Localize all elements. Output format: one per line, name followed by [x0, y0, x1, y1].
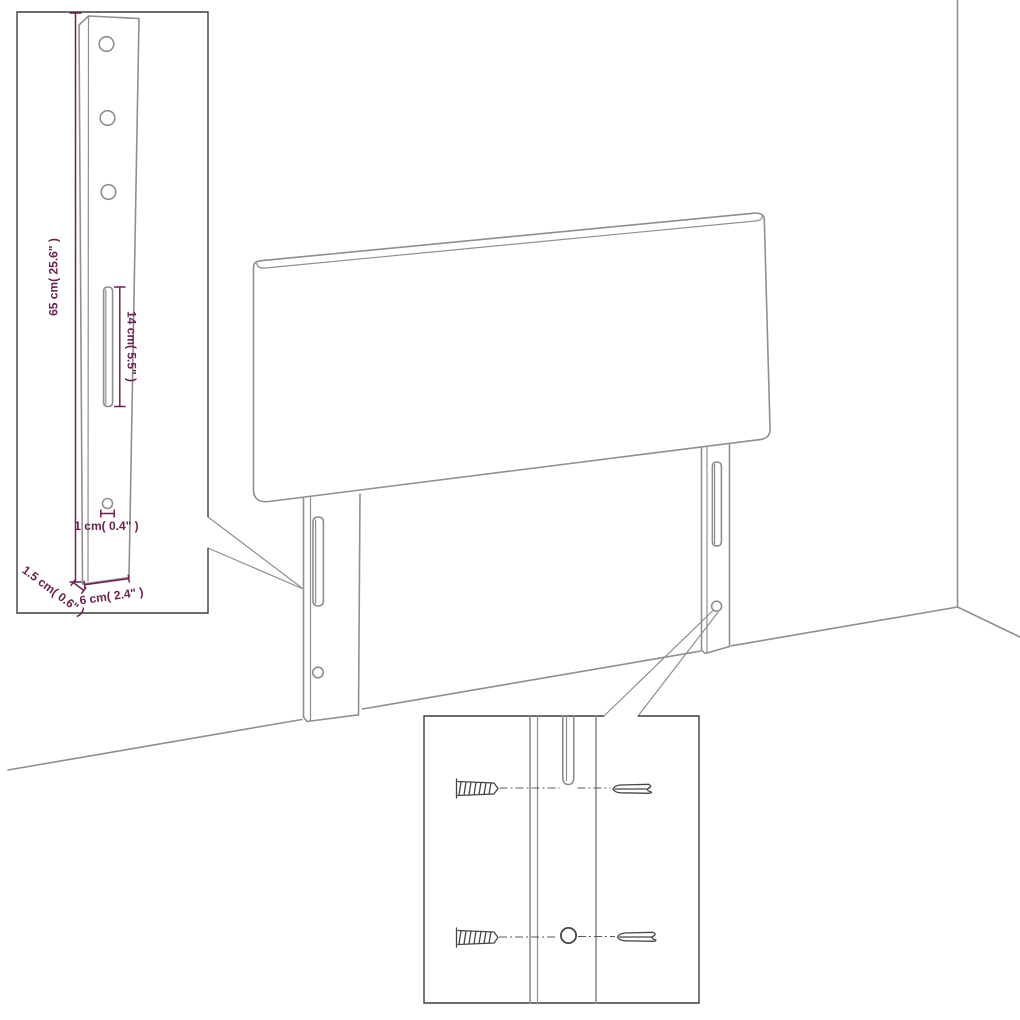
- inset-hardware-frame: [424, 716, 699, 1003]
- dimension-65cm-label: 65 cm( 25.6" ): [47, 238, 61, 316]
- callout-line-left: [604, 611, 713, 717]
- left-leg-slot: [313, 517, 323, 606]
- right-leg-slot: [712, 462, 721, 546]
- inset-leg-slot: [104, 287, 113, 407]
- inset-leg-drawing: [79, 16, 139, 584]
- headboard-panel-outline: [253, 213, 770, 502]
- inset-leg-hole-top: [99, 37, 114, 52]
- inset-hardware-leg-closeup: [530, 716, 596, 1003]
- floor-line-left-segment3: [732, 607, 958, 646]
- closeup-hole: [561, 928, 576, 943]
- callout-line-right: [638, 613, 718, 717]
- inset-leg-hole-middle: [100, 111, 115, 126]
- wall-plug-top: [457, 779, 499, 798]
- inset-hardware-detail: [424, 716, 699, 1003]
- headboard-dimension-diagram: 65 cm( 25.6" ) 14 cm( 5.5" ) 1 cm( 0.4" …: [0, 0, 1020, 1020]
- right-leg-hole: [712, 601, 722, 611]
- dimension-14cm-label: 14 cm( 5.5" ): [125, 311, 139, 382]
- dimension-1p5cm: 1.5 cm( 0.6" ): [19, 563, 87, 619]
- inset-leg-bottom-hole: [103, 499, 113, 509]
- dimension-65cm: 65 cm( 25.6" ): [47, 13, 82, 582]
- headboard-left-leg: [304, 494, 361, 721]
- left-leg-body: [304, 494, 361, 721]
- diagram-canvas: 65 cm( 25.6" ) 14 cm( 5.5" ) 1 cm( 0.4" …: [0, 0, 1020, 1020]
- inset-leg-detail: 65 cm( 25.6" ) 14 cm( 5.5" ) 1 cm( 0.4" …: [17, 12, 208, 619]
- floor-line-right: [958, 607, 1020, 637]
- headboard-panel: [253, 213, 770, 502]
- callout-wedge-to-left-leg: [208, 517, 302, 589]
- dimension-1cm-label: 1 cm( 0.4" ): [74, 519, 138, 533]
- floor-line-left-segment1: [8, 720, 302, 771]
- screw-top: [613, 784, 651, 793]
- inset-leg-face-edge: [88, 16, 89, 581]
- screw-bottom: [618, 932, 656, 941]
- dimension-1p5cm-label: 1.5 cm( 0.6" ): [19, 563, 87, 619]
- hardware-leader-lines: [499, 788, 615, 937]
- callout-line-upper: [208, 517, 302, 588]
- left-leg-hole: [313, 667, 324, 678]
- closeup-slot: [563, 716, 574, 785]
- callout-line-lower: [208, 548, 302, 589]
- headboard-right-leg: [702, 445, 730, 654]
- inset-leg-hole-lower: [101, 185, 116, 200]
- wall-plug-bottom: [457, 928, 499, 947]
- dimension-6cm-label: 6 cm( 2.4" ): [79, 585, 145, 608]
